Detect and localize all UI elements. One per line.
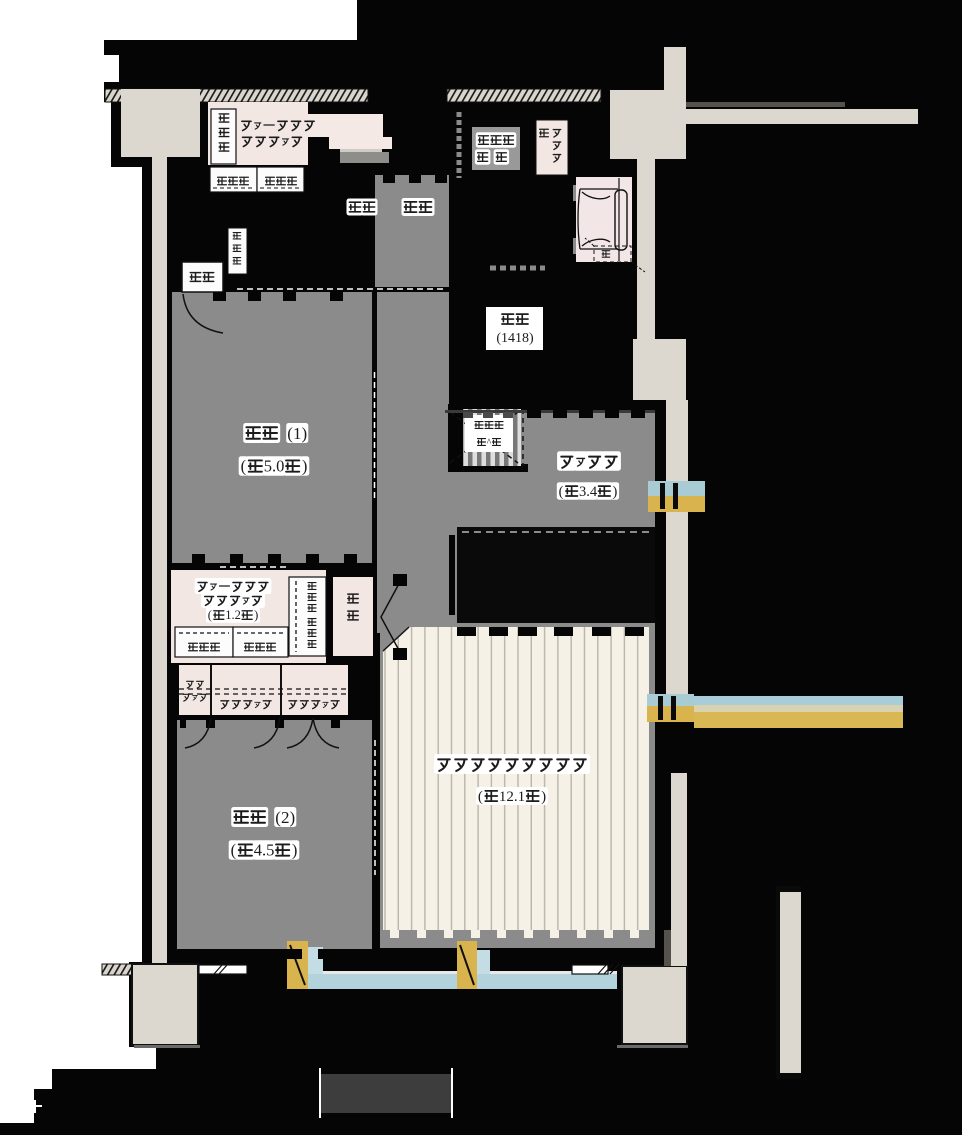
svg-text:(: ( xyxy=(559,484,564,500)
svg-text:): ) xyxy=(612,484,617,500)
svg-text:4.5: 4.5 xyxy=(254,841,275,860)
svg-text:): ) xyxy=(254,608,258,622)
svg-text:(: ( xyxy=(241,457,247,476)
svg-text:(: ( xyxy=(208,608,212,622)
svg-text:(1418): (1418) xyxy=(496,331,534,346)
svg-text:(: ( xyxy=(478,789,483,805)
svg-text:3.4: 3.4 xyxy=(579,484,598,500)
svg-text:): ) xyxy=(302,457,308,476)
svg-text:5.0: 5.0 xyxy=(264,457,285,476)
svg-text:(2): (2) xyxy=(275,808,295,827)
svg-text:1.2: 1.2 xyxy=(225,608,241,622)
svg-text:): ) xyxy=(541,789,546,805)
svg-text:(1): (1) xyxy=(287,424,307,443)
svg-text:(: ( xyxy=(231,841,237,860)
svg-text:12.1: 12.1 xyxy=(499,789,525,805)
svg-text:^: ^ xyxy=(487,437,492,448)
svg-text:): ) xyxy=(292,841,298,860)
